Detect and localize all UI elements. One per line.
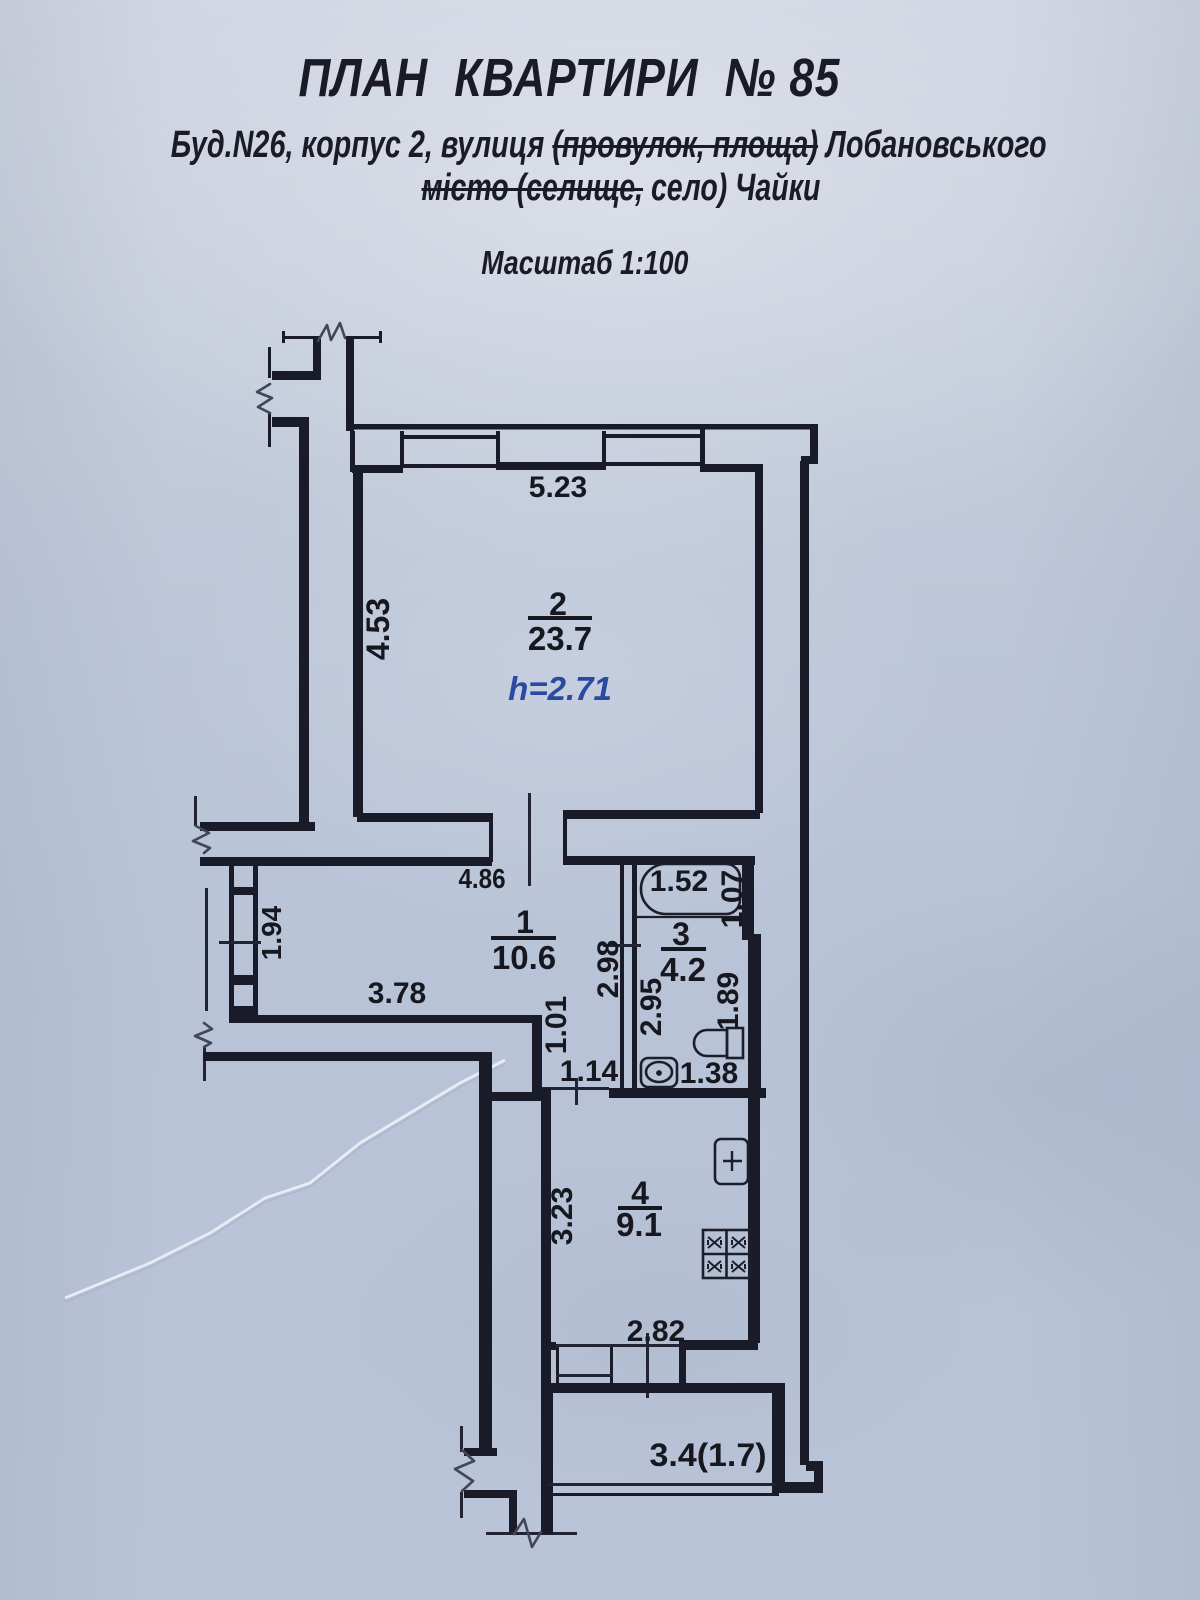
svg-text:2.82: 2.82 xyxy=(627,1315,685,1348)
svg-text:4.2: 4.2 xyxy=(660,951,706,988)
svg-text:4.86: 4.86 xyxy=(459,863,506,894)
svg-text:23.7: 23.7 xyxy=(528,620,592,657)
svg-text:3: 3 xyxy=(672,916,690,952)
svg-text:10.6: 10.6 xyxy=(492,939,556,976)
svg-text:1.14: 1.14 xyxy=(560,1055,619,1088)
svg-text:1.07: 1.07 xyxy=(716,870,749,928)
svg-text:3.4(1.7): 3.4(1.7) xyxy=(650,1437,767,1473)
svg-text:3.23: 3.23 xyxy=(546,1187,579,1245)
svg-text:4.53: 4.53 xyxy=(360,598,396,660)
svg-text:1.89: 1.89 xyxy=(712,972,745,1030)
svg-text:1.38: 1.38 xyxy=(680,1057,738,1090)
svg-text:2.98: 2.98 xyxy=(592,940,625,998)
svg-text:3.78: 3.78 xyxy=(368,977,426,1010)
svg-text:9.1: 9.1 xyxy=(616,1206,662,1243)
svg-text:1.94: 1.94 xyxy=(256,905,287,960)
svg-text:1.52: 1.52 xyxy=(650,865,708,898)
svg-text:1.01: 1.01 xyxy=(540,996,573,1054)
svg-text:1: 1 xyxy=(516,904,534,940)
svg-text:h=2.71: h=2.71 xyxy=(508,670,612,707)
svg-text:5.23: 5.23 xyxy=(529,471,587,504)
